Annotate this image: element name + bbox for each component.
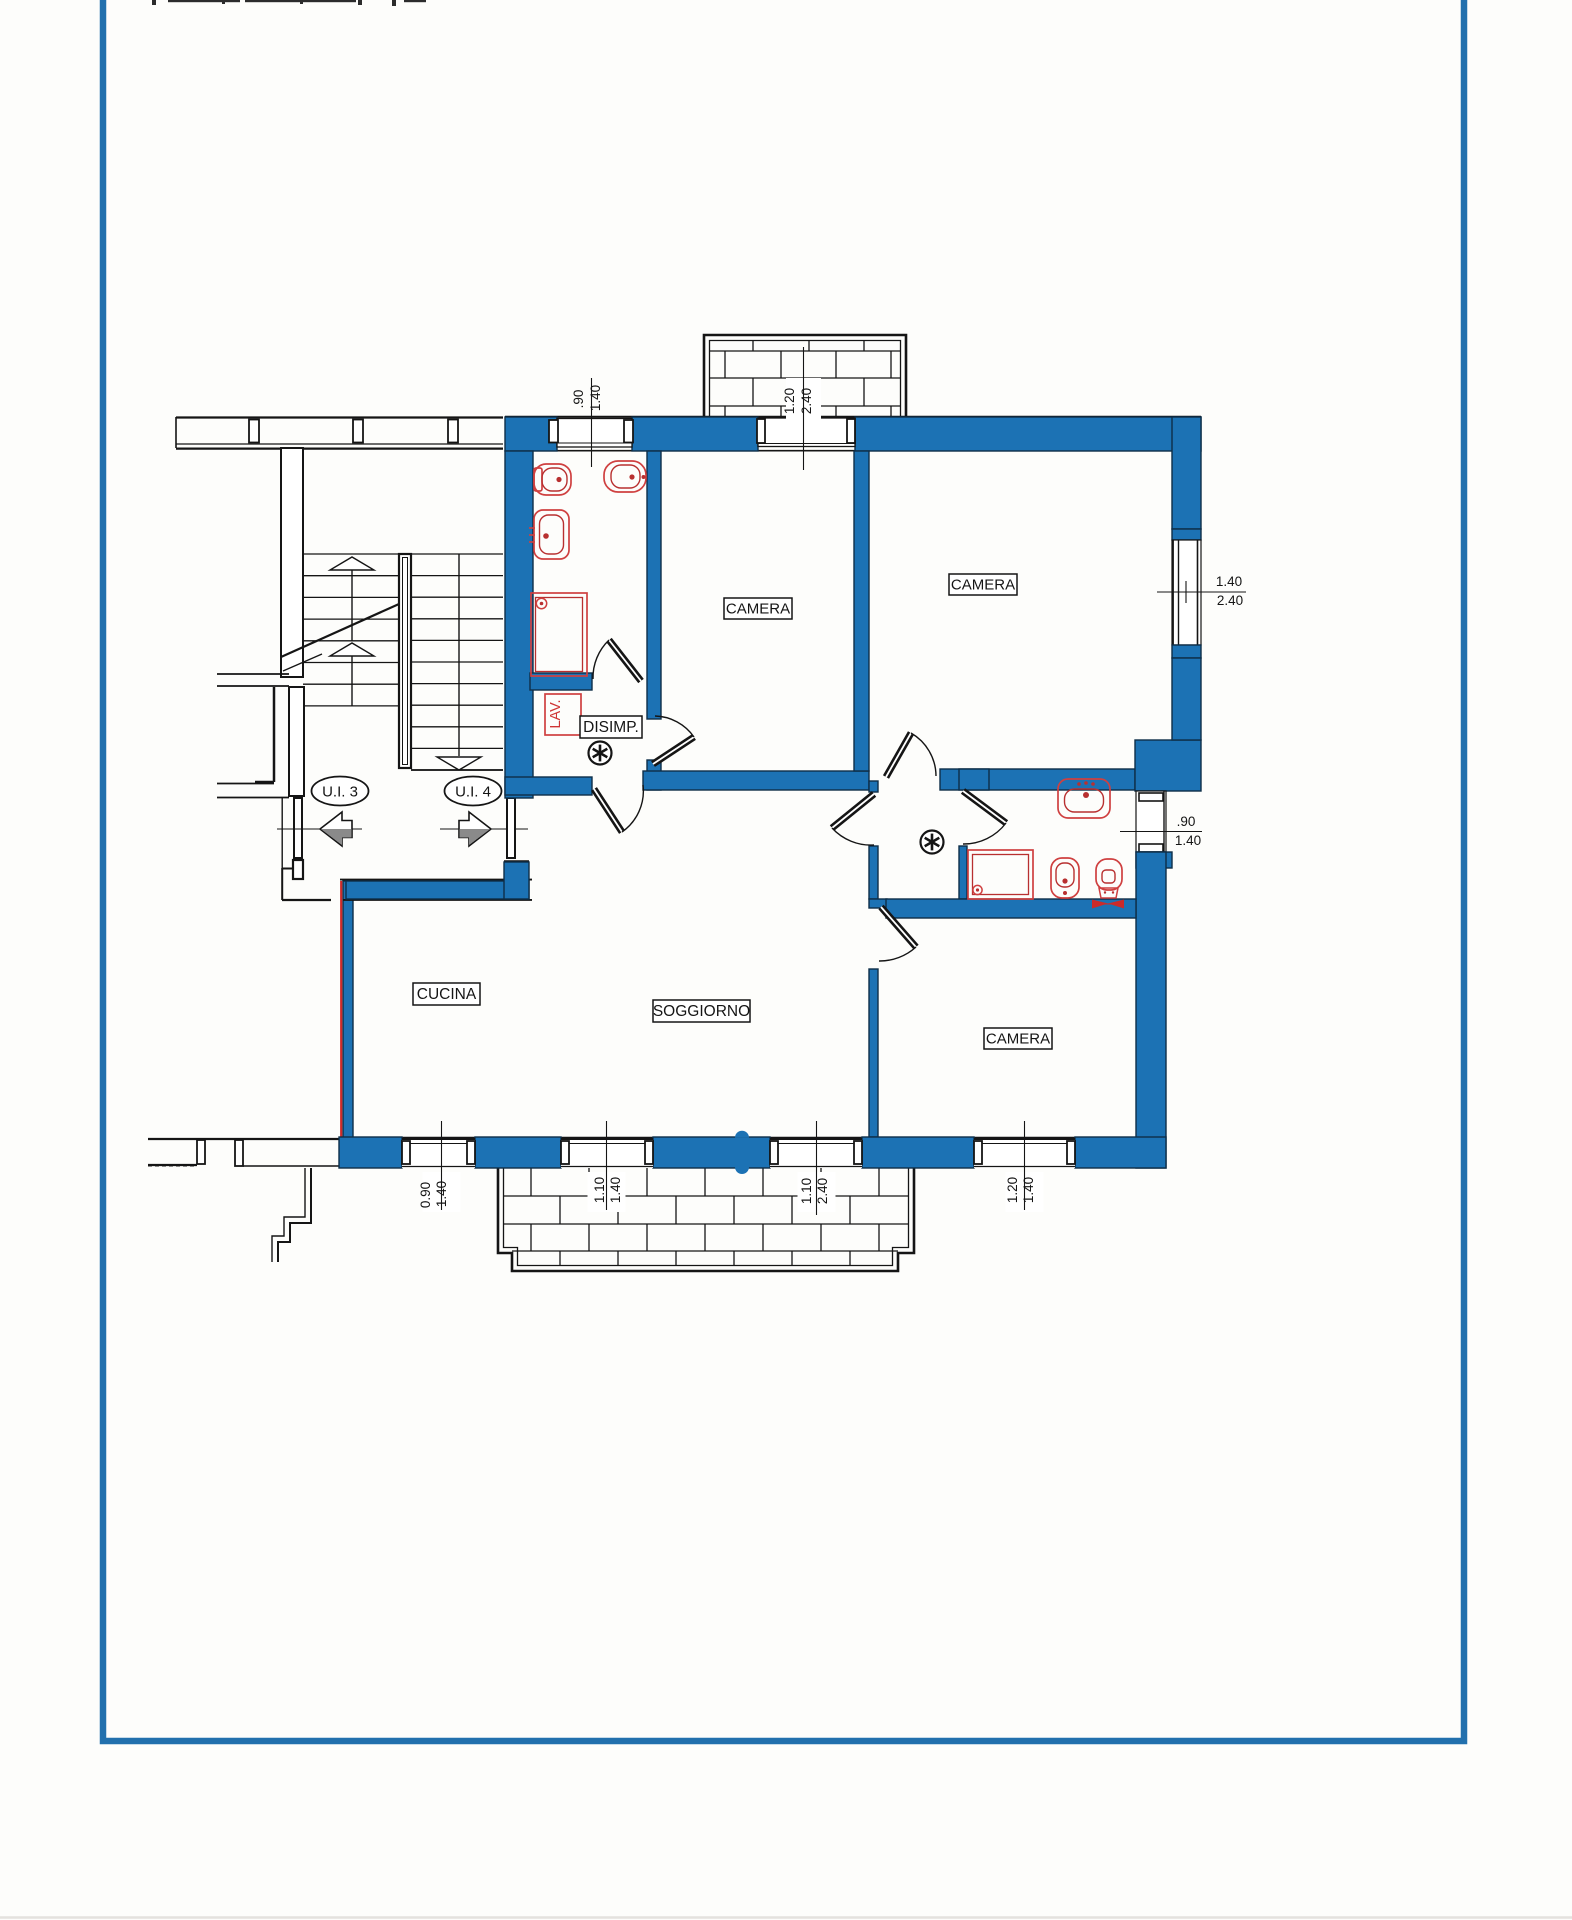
svg-text:1.40: 1.40 <box>1216 574 1242 589</box>
svg-text:2.40: 2.40 <box>1217 593 1243 608</box>
svg-text:CAMERA: CAMERA <box>986 1031 1050 1048</box>
svg-text:1.40: 1.40 <box>1175 833 1201 848</box>
svg-text:U.I. 3: U.I. 3 <box>322 784 358 801</box>
svg-text:1.20: 1.20 <box>782 388 797 414</box>
svg-text:1.40: 1.40 <box>588 385 603 411</box>
svg-text:CUCINA: CUCINA <box>417 986 477 1003</box>
svg-text:CAMERA: CAMERA <box>726 601 790 618</box>
svg-text:.90: .90 <box>1177 814 1196 829</box>
svg-text:1.40: 1.40 <box>1021 1177 1036 1203</box>
svg-text:U.I. 4: U.I. 4 <box>455 784 491 801</box>
svg-text:2.40: 2.40 <box>799 388 814 414</box>
svg-text:0.90: 0.90 <box>418 1182 433 1208</box>
svg-text:1.40: 1.40 <box>434 1181 449 1207</box>
svg-text:1.10: 1.10 <box>799 1178 814 1204</box>
svg-text:1.40: 1.40 <box>608 1177 623 1203</box>
svg-text:2.40: 2.40 <box>815 1178 830 1204</box>
svg-text:CAMERA: CAMERA <box>951 577 1015 594</box>
svg-text:SOGGIORNO: SOGGIORNO <box>653 1003 750 1020</box>
svg-text:DISIMP.: DISIMP. <box>583 719 639 736</box>
svg-text:1.10: 1.10 <box>592 1177 607 1203</box>
svg-text:1.20: 1.20 <box>1005 1177 1020 1203</box>
svg-text:LAV.: LAV. <box>548 699 564 728</box>
svg-text:.90: .90 <box>571 390 586 409</box>
